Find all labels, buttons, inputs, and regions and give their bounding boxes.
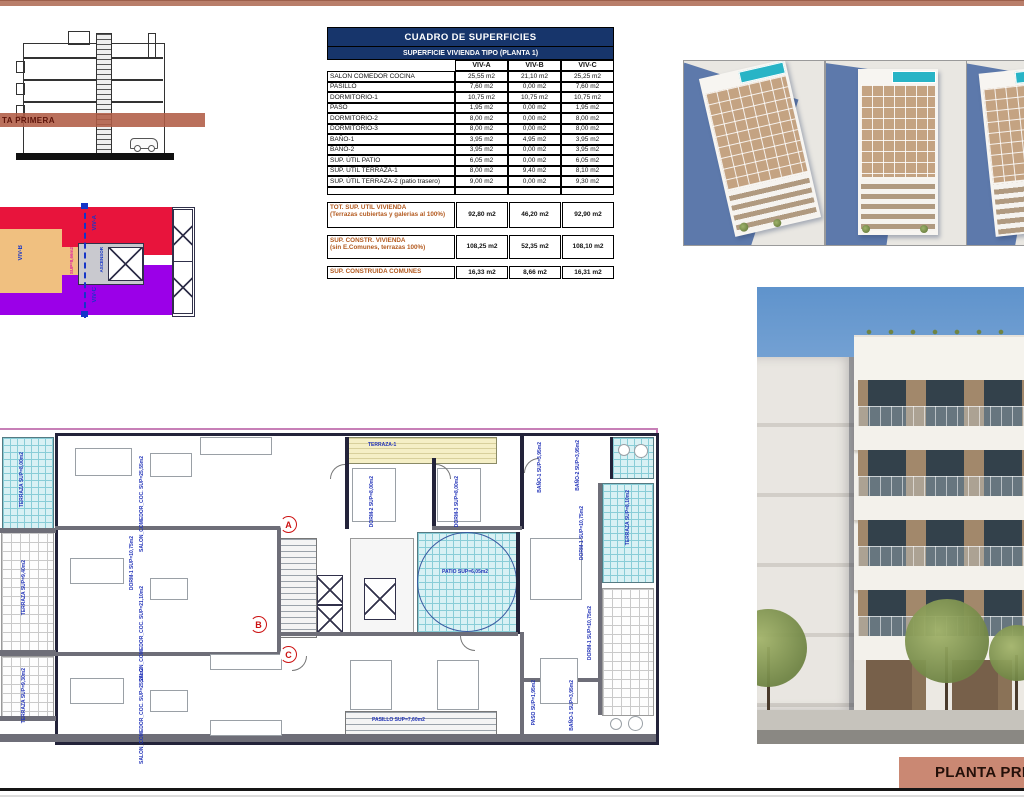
- kitchen-counter: [200, 437, 272, 455]
- room-label: TERRAZA SUP=8,10m2: [626, 490, 631, 545]
- summary-label: TOT. SUP. UTIL VIVIENDA: [330, 204, 452, 211]
- balcony-slab: [854, 496, 1024, 521]
- row-label: BAÑO-1: [327, 134, 455, 145]
- value-viv-c: 6,05 m2: [561, 155, 614, 166]
- cutaway-floorplan: [705, 75, 807, 189]
- room-label: SALON_COMEDOR_COC. SUP=25,25m2: [140, 668, 145, 764]
- room-label: BAÑO-1 SUP=3,95m2: [538, 442, 543, 493]
- bed: [530, 538, 582, 600]
- wall: [345, 437, 349, 529]
- unit-b-label: VIV-B: [18, 245, 24, 261]
- row-label: SUP. ÚTIL TERRAZA-1: [327, 166, 455, 177]
- table-row: SUP. ÚTIL TERRAZA-2 (patio trasero) 9,00…: [327, 176, 614, 187]
- stairs: [277, 538, 317, 638]
- core-label-ascensor: ASCENSOR: [100, 247, 105, 273]
- row-label: SUP. ÚTIL PATIO: [327, 155, 455, 166]
- sofa: [70, 558, 124, 584]
- summary-constr-comunes: SUP. CONSTRUIDA COMUNES 16,33 m2 8,66 m2…: [327, 266, 614, 279]
- room-label: DORM-2 SUP=8,00m2: [370, 476, 375, 527]
- value-viv-b: 0,00 m2: [508, 155, 561, 166]
- render-building: [858, 69, 938, 235]
- glass-balustrade: [858, 476, 1024, 496]
- bath-fixture: [618, 444, 630, 456]
- wall: [277, 632, 518, 636]
- balcony-level-4: [858, 380, 1024, 426]
- top-accent-bar: [0, 0, 1024, 6]
- section-floor-line: [23, 57, 163, 59]
- room-label: DORM-1 SUP=10,75m2: [588, 606, 593, 660]
- col-viv-b: VIV-B: [508, 60, 561, 71]
- room-label: BAÑO-2 SUP=3,95m2: [576, 440, 581, 491]
- summary-value-b: 46,20 m2: [509, 202, 561, 228]
- room-label: BAÑO-1 SUP=3,95m2: [570, 680, 575, 731]
- terrace-tiled-white: [1, 656, 54, 718]
- road: [757, 730, 1024, 744]
- value-viv-a: 8,00 m2: [455, 113, 508, 124]
- value-viv-a: 8,00 m2: [455, 124, 508, 135]
- wall: [520, 433, 524, 529]
- glass-balustrade: [858, 546, 1024, 566]
- table-furniture: [150, 578, 188, 600]
- value-viv-b: 0,00 m2: [508, 145, 561, 156]
- unit-a-label: VIV-A: [92, 215, 98, 231]
- corridor-hatch: [345, 711, 497, 736]
- value-viv-c: 3,95 m2: [561, 134, 614, 145]
- table-row: DORMITORIO-1 10,75 m2 10,75 m2 10,75 m2: [327, 92, 614, 103]
- summary-value-c: 92,90 m2: [562, 202, 614, 228]
- kitchen-counter: [210, 654, 282, 670]
- summary-value-b: 52,35 m2: [509, 235, 561, 259]
- summary-value-a: 108,25 m2: [456, 235, 508, 259]
- row-label: PASILLO: [327, 82, 455, 93]
- sofa: [75, 448, 132, 476]
- sheet-border-line: [0, 788, 1024, 791]
- parapet: [854, 335, 1024, 382]
- value-viv-b: 0,00 m2: [508, 113, 561, 124]
- corner-cell: [327, 60, 455, 69]
- row-label: PASO: [327, 103, 455, 114]
- unit-marker-c: C: [280, 646, 297, 663]
- value-viv-b: 21,10 m2: [508, 71, 561, 82]
- bed: [350, 660, 392, 710]
- wall: [55, 526, 277, 530]
- plan-sheet-page: TA PRIMERA VIV-A VIV-B VIV-C ASCENSOR SU…: [0, 0, 1024, 800]
- col-viv-c: VIV-C: [561, 60, 614, 71]
- room-label: PASO SUP=1,95m2: [532, 680, 537, 725]
- unit-b-zone: [0, 229, 62, 293]
- value-viv-a: 10,75 m2: [455, 92, 508, 103]
- value-viv-c: 9,30 m2: [561, 176, 614, 187]
- room-label: SALON_COMEDOR_COC. SUP=25,55m2: [140, 456, 145, 552]
- room-label: PASILLO SUP=7,60m2: [372, 718, 425, 723]
- sheet-title-box: PLANTA PRIMERA: [899, 757, 1024, 788]
- tree-icon: [862, 225, 870, 233]
- terrace-tiled-white: [1, 532, 54, 652]
- value-viv-b: 0,00 m2: [508, 124, 561, 135]
- summary-value-a: 16,33 m2: [456, 266, 508, 279]
- value-viv-b: 10,75 m2: [508, 92, 561, 103]
- wall: [432, 526, 522, 530]
- bath-fixture: [610, 718, 622, 730]
- patio-circle-outline: [417, 532, 517, 632]
- section-balcony: [16, 83, 25, 95]
- sheet-title: PLANTA PRIMERA: [899, 764, 1024, 781]
- side-core-x-lower: [173, 261, 193, 314]
- value-viv-c: 8,00 m2: [561, 124, 614, 135]
- balcony-slab: [854, 426, 1024, 451]
- table-subtitle: SUPERFICIE VIVIENDA TIPO (PLANTA 1): [327, 47, 614, 60]
- elevator-symbol: [317, 605, 343, 635]
- value-viv-a: 6,05 m2: [455, 155, 508, 166]
- table-row: DORMITORIO-2 8,00 m2 0,00 m2 8,00 m2: [327, 113, 614, 124]
- value-viv-b: 0,00 m2: [508, 176, 561, 187]
- side-core-x-upper: [173, 209, 193, 262]
- room-label: TERRAZA-1: [368, 443, 396, 448]
- room-label: DORM-1 SUP=10,75m2: [130, 536, 135, 590]
- roof-pool: [892, 71, 936, 83]
- section-tower: [148, 33, 156, 59]
- value-viv-b: 4,95 m2: [508, 134, 561, 145]
- wall: [516, 532, 520, 634]
- bathroom-teal: [612, 437, 654, 479]
- room-label: TERRAZA SUP=9,30m2: [22, 668, 27, 723]
- row-label: DORMITORIO-2: [327, 113, 455, 124]
- summary-value-c: 16,31 m2: [562, 266, 614, 279]
- balcony-level-2: [858, 520, 1024, 566]
- section-cut-line: [84, 203, 86, 318]
- plot-boundary-line: [0, 428, 658, 430]
- summary-note: (Terrazas cubiertas y galerias al 100%): [330, 211, 452, 218]
- table-row: SUP. ÚTIL TERRAZA-1 8,00 m2 9,40 m2 8,10…: [327, 166, 614, 177]
- unit-marker-a: A: [280, 516, 297, 533]
- elevator-symbol: [317, 575, 343, 605]
- summary-value-a: 92,80 m2: [456, 202, 508, 228]
- row-label: SALON COMEDOR COCINA: [327, 71, 455, 82]
- wall: [610, 437, 613, 479]
- value-viv-c: 25,25 m2: [561, 71, 614, 82]
- tree: [905, 599, 989, 683]
- table-title: CUADRO DE SUPERFICIES: [327, 27, 614, 47]
- building-facade-strip: [861, 179, 935, 231]
- surface-table: CUADRO DE SUPERFICIES SUPERFICIE VIVIEND…: [327, 27, 614, 279]
- level-band-label: TA PRIMERA: [0, 116, 55, 125]
- glass-balustrade: [858, 406, 1024, 426]
- terrace-tiled-white: [602, 588, 654, 716]
- table-row: BAÑO-1 3,95 m2 4,95 m2 3,95 m2: [327, 134, 614, 145]
- sheet-border-line-light: [0, 795, 1024, 797]
- wall: [0, 528, 56, 533]
- unit-c-label: VIV-C: [92, 287, 98, 303]
- unit-marker-b: B: [250, 616, 267, 633]
- summary-label: SUP. CONSTRUIDA COMUNES: [330, 268, 421, 275]
- cut-line-end: [81, 311, 88, 317]
- table-row: PASILLO 7,60 m2 0,00 m2 7,60 m2: [327, 82, 614, 93]
- tree-icon: [920, 225, 928, 233]
- room-label: TERRAZA SUP=8,00m2: [20, 452, 25, 507]
- room-label: DORM-1 SUP=10,75m2: [580, 506, 585, 560]
- table-furniture: [150, 453, 192, 477]
- facade-render: [757, 287, 1024, 744]
- balcony-slab: [854, 566, 1024, 591]
- floor-plan: A B C TERRAZA SUP=8,00m2 SALON_COMEDOR_C…: [0, 428, 660, 746]
- summary-total-util: TOT. SUP. UTIL VIVIENDA (Terrazas cubier…: [327, 202, 614, 228]
- elevator-symbol: [364, 578, 396, 620]
- value-viv-c: 8,10 m2: [561, 166, 614, 177]
- building-facade-strip: [993, 177, 1024, 235]
- roof-pool: [1015, 67, 1024, 84]
- wall: [520, 632, 524, 736]
- bath-fixture: [628, 716, 643, 731]
- table-row: PASO 1,95 m2 0,00 m2 1,95 m2: [327, 103, 614, 114]
- bath-fixture: [634, 444, 648, 458]
- section-balcony: [16, 61, 25, 73]
- table-row: DORMITORIO-3 8,00 m2 0,00 m2 8,00 m2: [327, 124, 614, 135]
- table-body: SALON COMEDOR COCINA 25,55 m2 21,10 m2 2…: [327, 71, 614, 187]
- value-viv-a: 3,95 m2: [455, 134, 508, 145]
- planta-primera-level-band: TA PRIMERA: [0, 113, 205, 127]
- terrace-tiled-teal: [2, 437, 54, 531]
- row-label: SUP. ÚTIL TERRAZA-2 (patio trasero): [327, 176, 455, 187]
- kitchen-counter: [210, 720, 282, 736]
- balcony-level-3: [858, 450, 1024, 496]
- wall: [0, 716, 56, 721]
- section-stair-core: [96, 33, 112, 155]
- summary-note: (sin E.Comunes, terrazas 100%): [330, 244, 452, 251]
- table-row: SALON COMEDOR COCINA 25,55 m2 21,10 m2 2…: [327, 71, 614, 82]
- building-section-drawing: [8, 25, 188, 170]
- value-viv-a: 25,55 m2: [455, 71, 508, 82]
- elevator-symbol: [108, 247, 143, 281]
- table-furniture: [150, 690, 188, 712]
- aerial-render-2: [825, 60, 967, 246]
- room-label: TERRAZA SUP=9,40m2: [22, 560, 27, 615]
- car-wheel: [148, 145, 155, 152]
- value-viv-a: 9,00 m2: [455, 176, 508, 187]
- summary-constr-vivienda: SUP. CONSTR. VIVIENDA (sin E.Comunes, te…: [327, 235, 614, 259]
- table-row: BAÑO-2 3,95 m2 0,00 m2 3,95 m2: [327, 145, 614, 156]
- row-label: DORMITORIO-1: [327, 92, 455, 103]
- sidewalk: [757, 710, 1024, 730]
- wall: [277, 526, 281, 656]
- value-viv-b: 0,00 m2: [508, 103, 561, 114]
- section-ground-line: [16, 153, 174, 160]
- room-label: DORM-3 SUP=8,00m2: [455, 476, 460, 527]
- value-viv-c: 8,00 m2: [561, 113, 614, 124]
- row-label: BAÑO-2: [327, 145, 455, 156]
- cut-line-end: [81, 203, 88, 209]
- room-label: PATIO SUP=6,05m2: [442, 570, 488, 575]
- value-viv-c: 10,75 m2: [561, 92, 614, 103]
- summary-label: SUP. CONSTR. VIVIENDA: [330, 237, 452, 244]
- section-roof-unit: [68, 31, 90, 45]
- value-viv-b: 0,00 m2: [508, 82, 561, 93]
- core-label-sup: SUP=8,66m2: [70, 247, 75, 274]
- unit-key-plan: VIV-A VIV-B VIV-C ASCENSOR SUP=8,66m2: [0, 203, 196, 318]
- row-label: DORMITORIO-3: [327, 124, 455, 135]
- value-viv-c: 1,95 m2: [561, 103, 614, 114]
- value-viv-a: 1,95 m2: [455, 103, 508, 114]
- value-viv-a: 3,95 m2: [455, 145, 508, 156]
- col-viv-a: VIV-A: [455, 60, 508, 71]
- aerial-render-3: [966, 60, 1024, 246]
- summary-value-b: 8,66 m2: [509, 266, 561, 279]
- value-viv-c: 3,95 m2: [561, 145, 614, 156]
- table-row: SUP. ÚTIL PATIO 6,05 m2 0,00 m2 6,05 m2: [327, 155, 614, 166]
- wall: [0, 650, 56, 656]
- cutaway-floorplan: [983, 81, 1024, 182]
- bed: [437, 660, 479, 710]
- value-viv-a: 7,60 m2: [455, 82, 508, 93]
- section-floor-line: [23, 79, 163, 81]
- table-column-headers: VIV-A VIV-B VIV-C: [327, 60, 614, 71]
- car-wheel: [134, 145, 141, 152]
- table-spacer-row: [327, 187, 614, 195]
- wall-bottom: [0, 734, 656, 742]
- aerial-render-1: [683, 60, 825, 246]
- value-viv-b: 9,40 m2: [508, 166, 561, 177]
- section-floor-line: [23, 101, 163, 103]
- sofa: [70, 678, 124, 704]
- value-viv-a: 8,00 m2: [455, 166, 508, 177]
- summary-value-c: 108,10 m2: [562, 235, 614, 259]
- cutaway-floorplan: [861, 85, 935, 177]
- value-viv-c: 7,60 m2: [561, 82, 614, 93]
